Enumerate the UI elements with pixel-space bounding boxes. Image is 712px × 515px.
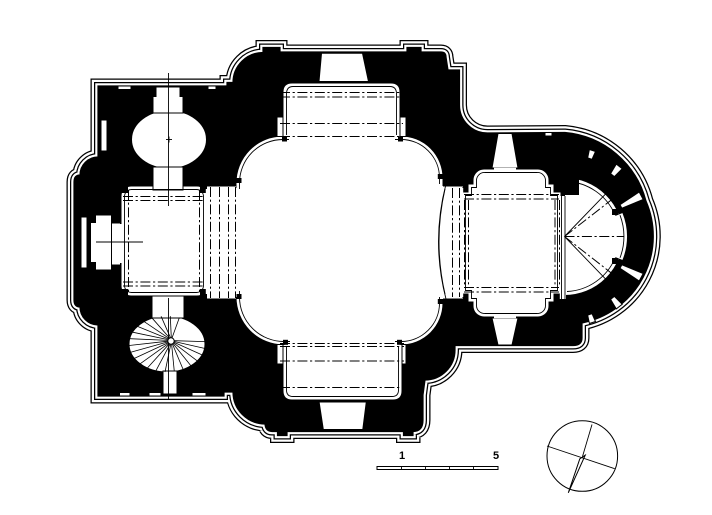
svg-text:1: 1 [399, 450, 405, 462]
svg-text:5: 5 [493, 450, 499, 462]
